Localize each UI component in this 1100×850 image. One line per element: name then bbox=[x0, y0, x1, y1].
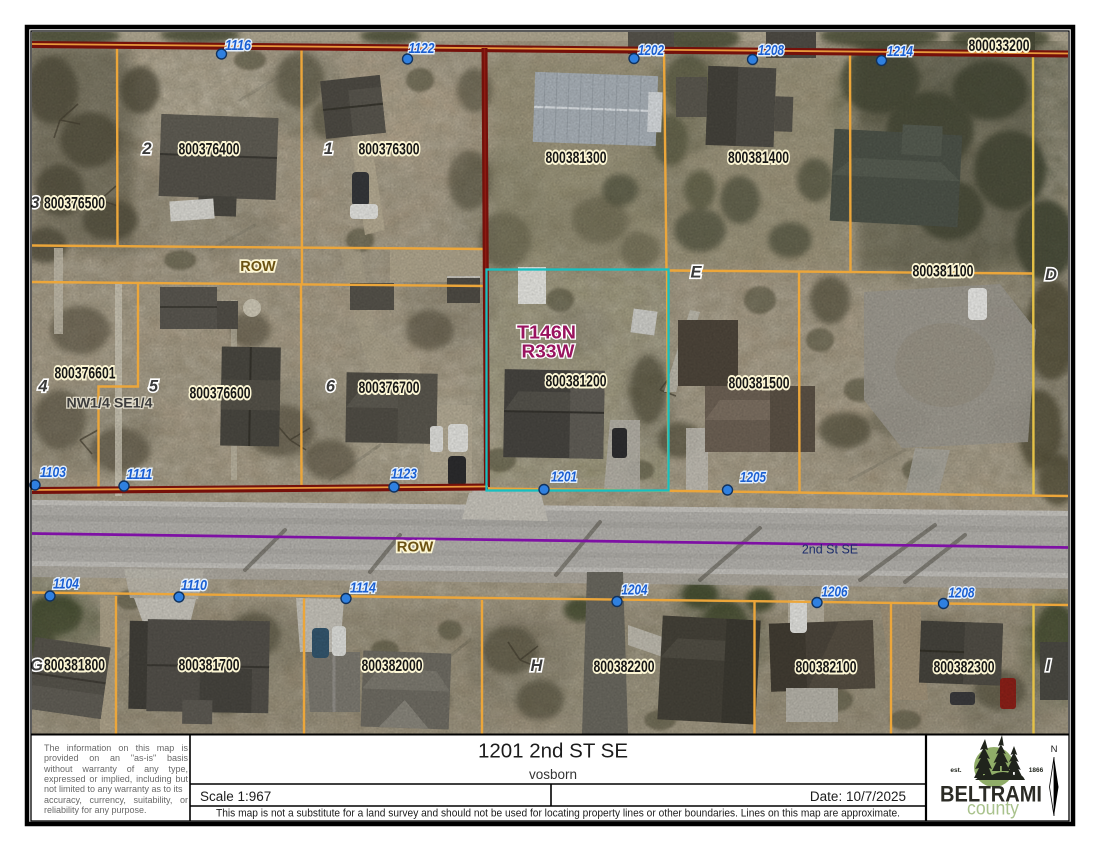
svg-text:G: G bbox=[30, 657, 43, 675]
svg-text:E: E bbox=[690, 264, 702, 282]
svg-text:800376600: 800376600 bbox=[190, 384, 251, 403]
svg-text:1: 1 bbox=[324, 140, 333, 158]
svg-text:vosborn: vosborn bbox=[529, 767, 577, 782]
svg-text:800382300: 800382300 bbox=[934, 658, 995, 677]
svg-text:T146N: T146N bbox=[517, 323, 576, 343]
svg-text:800376400: 800376400 bbox=[179, 140, 240, 159]
svg-text:1205: 1205 bbox=[740, 470, 767, 486]
svg-text:1116: 1116 bbox=[225, 38, 252, 54]
svg-text:800381100: 800381100 bbox=[913, 262, 974, 281]
svg-text:800381300: 800381300 bbox=[546, 148, 607, 167]
svg-text:R33W: R33W bbox=[522, 342, 575, 362]
svg-text:Scale 1:967: Scale 1:967 bbox=[200, 789, 271, 804]
svg-text:800382100: 800382100 bbox=[796, 658, 857, 677]
svg-text:800033200: 800033200 bbox=[969, 36, 1030, 55]
svg-text:1208: 1208 bbox=[949, 586, 976, 602]
svg-text:1202: 1202 bbox=[638, 43, 664, 59]
svg-text:1110: 1110 bbox=[181, 578, 207, 594]
svg-text:800376700: 800376700 bbox=[359, 378, 420, 397]
svg-text:1206: 1206 bbox=[822, 585, 849, 601]
svg-text:est.: est. bbox=[950, 767, 961, 774]
svg-text:1123: 1123 bbox=[391, 467, 417, 483]
svg-text:1214: 1214 bbox=[887, 44, 913, 60]
svg-text:ROW: ROW bbox=[397, 539, 435, 556]
svg-text:800381400: 800381400 bbox=[728, 148, 789, 167]
svg-text:1111: 1111 bbox=[127, 467, 153, 483]
svg-text:1103: 1103 bbox=[40, 465, 66, 481]
svg-text:5: 5 bbox=[149, 378, 159, 396]
svg-text:800382000: 800382000 bbox=[362, 656, 423, 675]
svg-text:2: 2 bbox=[141, 140, 151, 158]
svg-text:1866: 1866 bbox=[1029, 767, 1044, 774]
svg-text:1104: 1104 bbox=[53, 577, 79, 593]
svg-text:800376601: 800376601 bbox=[55, 364, 116, 383]
svg-text:800376500: 800376500 bbox=[44, 194, 105, 213]
svg-text:1122: 1122 bbox=[409, 41, 435, 57]
svg-text:D: D bbox=[1045, 266, 1057, 284]
svg-text:ROW: ROW bbox=[240, 259, 276, 275]
svg-text:6: 6 bbox=[326, 378, 336, 396]
svg-text:800376300: 800376300 bbox=[359, 140, 420, 159]
svg-text:3: 3 bbox=[30, 194, 39, 212]
svg-text:This map is not a substitute f: This map is not a substitute for a land … bbox=[216, 808, 900, 820]
svg-text:1114: 1114 bbox=[350, 581, 376, 597]
svg-text:1201 2nd ST SE: 1201 2nd ST SE bbox=[478, 740, 628, 763]
svg-text:800381500: 800381500 bbox=[729, 374, 790, 393]
svg-text:I: I bbox=[1046, 657, 1051, 675]
svg-text:2nd St SE: 2nd St SE bbox=[802, 543, 858, 557]
svg-text:NW1/4 SE1/4: NW1/4 SE1/4 bbox=[67, 396, 154, 411]
svg-text:4: 4 bbox=[37, 378, 47, 396]
svg-text:800381700: 800381700 bbox=[179, 656, 240, 675]
svg-text:1201: 1201 bbox=[551, 470, 577, 486]
svg-text:800381800: 800381800 bbox=[44, 656, 105, 675]
svg-text:800381200: 800381200 bbox=[546, 372, 607, 391]
svg-text:county: county bbox=[967, 799, 1019, 820]
svg-text:Date: 10/7/2025: Date: 10/7/2025 bbox=[810, 789, 906, 804]
svg-text:N: N bbox=[1051, 744, 1058, 755]
svg-text:H: H bbox=[531, 657, 544, 675]
svg-text:1204: 1204 bbox=[622, 583, 648, 599]
svg-text:800382200: 800382200 bbox=[594, 657, 655, 676]
svg-text:1208: 1208 bbox=[758, 43, 785, 59]
